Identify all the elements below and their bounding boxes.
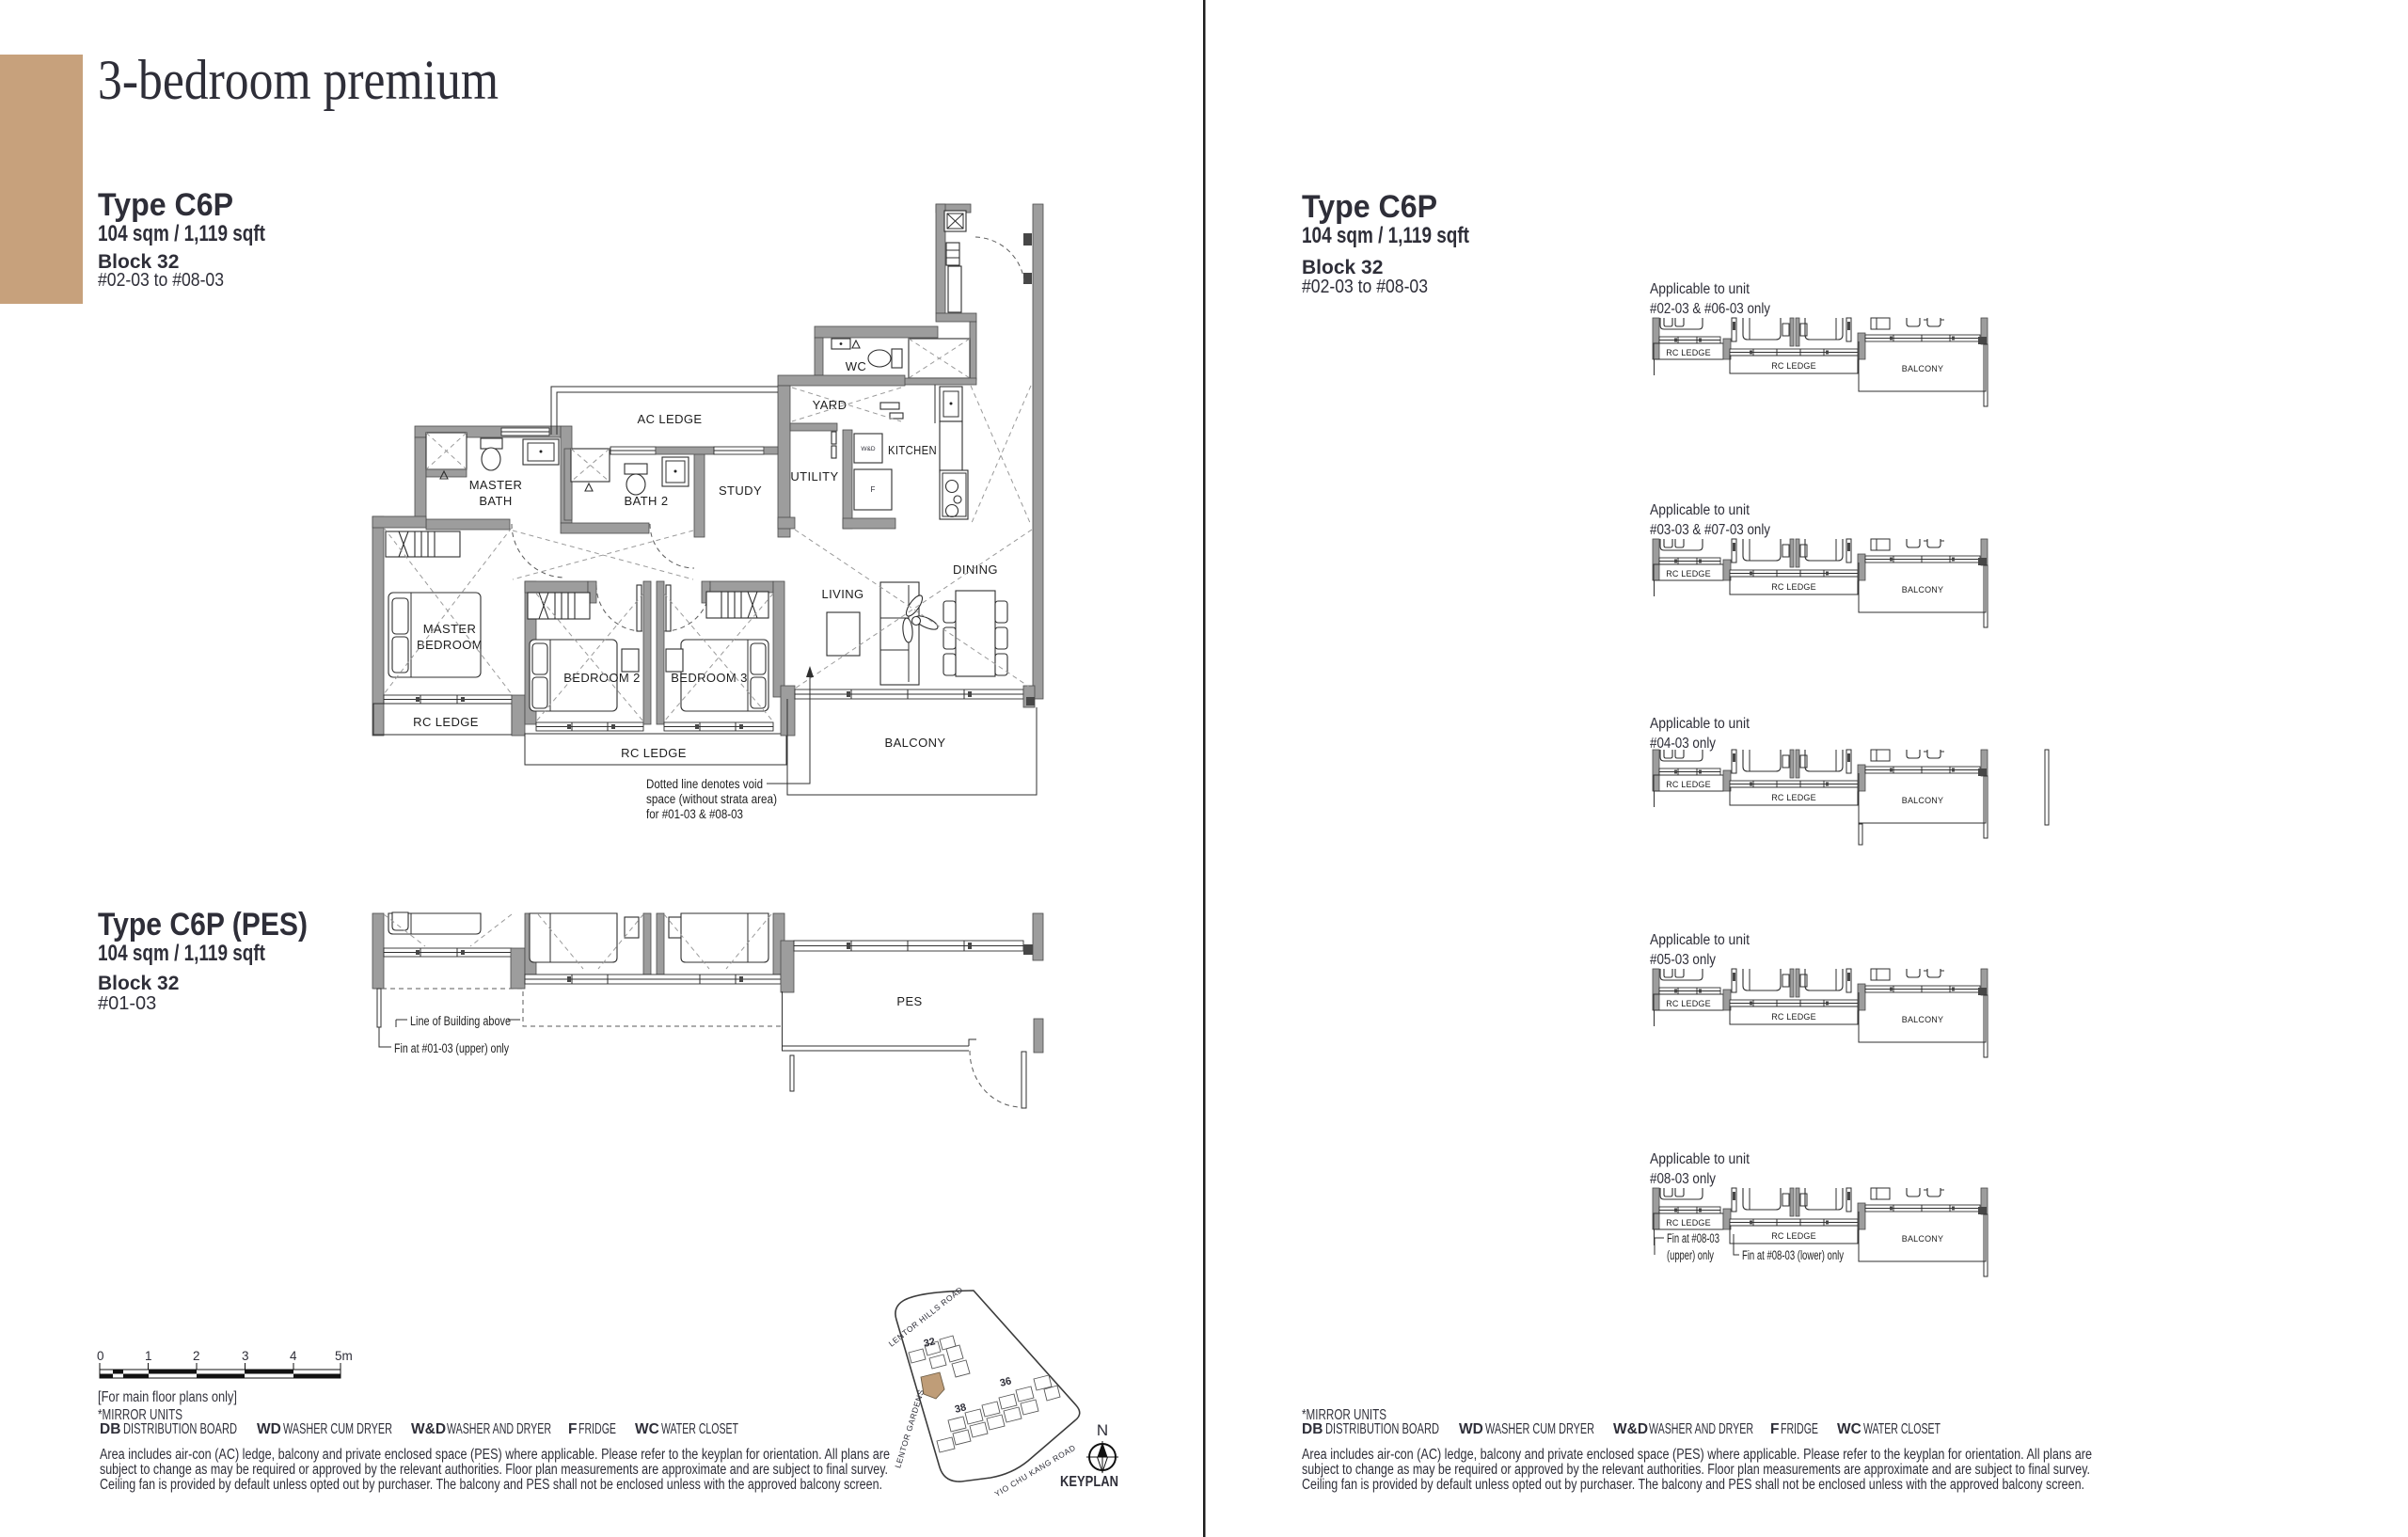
- svg-text:#02-03 to #08-03: #02-03 to #08-03: [1302, 277, 1428, 297]
- svg-text:RC LEDGE: RC LEDGE: [621, 746, 687, 760]
- svg-text:Line of Building above: Line of Building above: [410, 1014, 511, 1028]
- svg-text:DB: DB: [1302, 1421, 1323, 1437]
- svg-text:3: 3: [242, 1349, 249, 1363]
- svg-text:#01-03: #01-03: [98, 993, 156, 1014]
- svg-text:BALCONY: BALCONY: [885, 736, 946, 750]
- svg-text:#04-03 only: #04-03 only: [1650, 736, 1716, 752]
- svg-text:104 sqm / 1,119 sqft: 104 sqm / 1,119 sqft: [98, 941, 265, 966]
- svg-text:FRIDGE: FRIDGE: [578, 1421, 616, 1437]
- svg-text:WC: WC: [846, 359, 866, 373]
- svg-text:#08-03 only: #08-03 only: [1650, 1171, 1716, 1187]
- svg-text:WASHER AND DRYER: WASHER AND DRYER: [1649, 1421, 1753, 1437]
- svg-text:#02-03 to #08-03: #02-03 to #08-03: [98, 270, 224, 291]
- svg-text:RC LEDGE: RC LEDGE: [413, 715, 479, 729]
- svg-text:AC LEDGE: AC LEDGE: [638, 412, 703, 426]
- svg-text:Block 32: Block 32: [1302, 257, 1383, 278]
- svg-text:Applicable to unit: Applicable to unit: [1650, 716, 1751, 732]
- svg-text:PES: PES: [896, 994, 922, 1008]
- svg-text:Ceiling fan is provided by def: Ceiling fan is provided by default unles…: [1302, 1477, 2084, 1493]
- svg-text:Fin at #01-03 (upper) only: Fin at #01-03 (upper) only: [394, 1041, 509, 1055]
- svg-text:Fin at #08-03 (lower) only: Fin at #08-03 (lower) only: [1742, 1248, 1844, 1262]
- svg-text:STUDY: STUDY: [719, 483, 762, 498]
- svg-text:W&D: W&D: [861, 446, 875, 452]
- svg-text:#05-03 only: #05-03 only: [1650, 952, 1716, 968]
- svg-text:#02-03 & #06-03 only: #02-03 & #06-03 only: [1650, 301, 1770, 317]
- svg-text:#03-03 & #07-03 only: #03-03 & #07-03 only: [1650, 522, 1770, 538]
- svg-text:4: 4: [290, 1349, 297, 1363]
- svg-text:W&D: W&D: [411, 1421, 446, 1437]
- svg-text:Applicable to unit: Applicable to unit: [1650, 1151, 1751, 1167]
- svg-text:Area includes air-con (AC) led: Area includes air-con (AC) ledge, balcon…: [100, 1447, 890, 1463]
- svg-text:KEYPLAN: KEYPLAN: [1060, 1474, 1118, 1490]
- svg-text:BATH 2: BATH 2: [625, 494, 669, 508]
- svg-text:WC: WC: [1837, 1421, 1861, 1437]
- svg-text:WATER CLOSET: WATER CLOSET: [1863, 1421, 1941, 1437]
- svg-text:Type C6P (PES): Type C6P (PES): [98, 907, 308, 943]
- svg-text:space (without strata area): space (without strata area): [646, 792, 777, 806]
- svg-text:WASHER CUM DRYER: WASHER CUM DRYER: [1485, 1421, 1594, 1437]
- svg-text:DISTRIBUTION BOARD: DISTRIBUTION BOARD: [123, 1421, 237, 1437]
- svg-text:Block 32: Block 32: [98, 973, 179, 994]
- svg-text:F: F: [1770, 1421, 1779, 1437]
- svg-text:N: N: [1097, 1421, 1108, 1439]
- svg-text:subject to change as may be re: subject to change as may be required or …: [1302, 1462, 2090, 1478]
- svg-text:DB: DB: [100, 1421, 120, 1437]
- svg-text:Type C6P: Type C6P: [1302, 189, 1437, 225]
- svg-text:MASTER: MASTER: [423, 622, 477, 636]
- svg-text:DINING: DINING: [953, 563, 998, 577]
- svg-text:WD: WD: [257, 1421, 281, 1437]
- svg-text:subject to change as may be re: subject to change as may be required or …: [100, 1462, 888, 1478]
- svg-text:1: 1: [145, 1349, 152, 1363]
- svg-text:Fin at #08-03: Fin at #08-03: [1667, 1231, 1719, 1245]
- svg-text:FRIDGE: FRIDGE: [1781, 1421, 1818, 1437]
- svg-text:WASHER CUM DRYER: WASHER CUM DRYER: [283, 1421, 392, 1437]
- svg-text:UTILITY: UTILITY: [790, 469, 838, 483]
- svg-text:104 sqm / 1,119 sqft: 104 sqm / 1,119 sqft: [1302, 223, 1469, 248]
- svg-text:3-bedroom premium: 3-bedroom premium: [98, 49, 499, 111]
- svg-text:WC: WC: [635, 1421, 659, 1437]
- svg-text:BATH: BATH: [479, 494, 512, 508]
- svg-text:for #01-03 & #08-03: for #01-03 & #08-03: [646, 807, 743, 821]
- svg-text:Applicable to unit: Applicable to unit: [1650, 932, 1751, 948]
- svg-text:Ceiling fan is provided by def: Ceiling fan is provided by default unles…: [100, 1477, 882, 1493]
- svg-text:Applicable to unit: Applicable to unit: [1650, 281, 1751, 297]
- svg-text:YARD: YARD: [813, 398, 848, 412]
- svg-text:F: F: [871, 485, 876, 494]
- svg-text:W&D: W&D: [1613, 1421, 1648, 1437]
- svg-text:KITCHEN: KITCHEN: [888, 443, 937, 457]
- svg-text:Dotted line denotes void: Dotted line denotes void: [646, 777, 763, 791]
- svg-text:2: 2: [193, 1349, 200, 1363]
- svg-text:Applicable to unit: Applicable to unit: [1650, 502, 1751, 518]
- svg-text:F: F: [568, 1421, 577, 1437]
- svg-text:LIVING: LIVING: [821, 587, 863, 601]
- svg-text:WATER CLOSET: WATER CLOSET: [661, 1421, 738, 1437]
- svg-text:104 sqm / 1,119 sqft: 104 sqm / 1,119 sqft: [98, 221, 265, 246]
- svg-text:BEDROOM: BEDROOM: [417, 638, 483, 652]
- svg-text:MASTER: MASTER: [469, 478, 523, 492]
- svg-text:Area includes air-con (AC) led: Area includes air-con (AC) ledge, balcon…: [1302, 1447, 2092, 1463]
- svg-text:[For main floor plans only]: [For main floor plans only]: [98, 1389, 237, 1405]
- svg-text:5m: 5m: [335, 1349, 353, 1363]
- svg-text:DISTRIBUTION BOARD: DISTRIBUTION BOARD: [1325, 1421, 1439, 1437]
- svg-text:0: 0: [97, 1349, 104, 1363]
- svg-text:WD: WD: [1459, 1421, 1483, 1437]
- svg-text:(upper) only: (upper) only: [1667, 1248, 1714, 1262]
- svg-text:WASHER AND DRYER: WASHER AND DRYER: [447, 1421, 551, 1437]
- svg-text:Type C6P: Type C6P: [98, 187, 233, 223]
